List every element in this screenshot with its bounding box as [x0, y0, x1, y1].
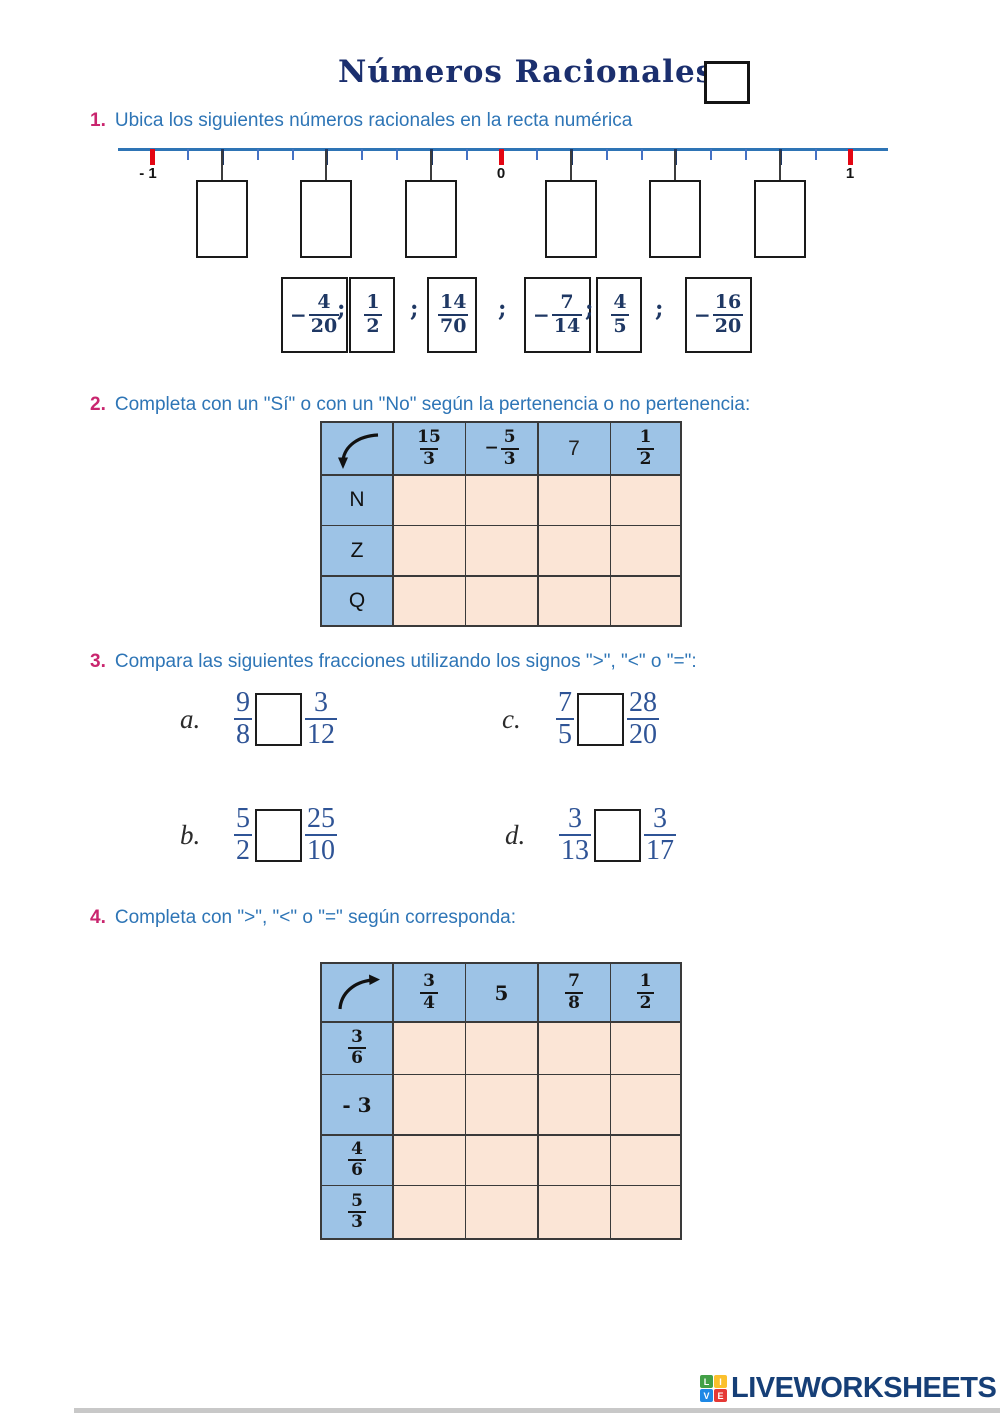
fraction-card[interactable]: 1470 — [427, 277, 477, 353]
answer-cell[interactable] — [466, 476, 537, 525]
numerator: 16 — [715, 292, 741, 314]
comparison-item-b: b. 52 2510 — [180, 804, 337, 866]
col-header: 78 — [539, 964, 610, 1021]
answer-cell[interactable] — [539, 577, 610, 625]
comparison-answer-box[interactable] — [255, 693, 302, 746]
answer-cell[interactable] — [394, 1186, 465, 1238]
denominator: 5 — [556, 718, 574, 750]
answer-cell[interactable] — [611, 1075, 680, 1134]
logo-square-v: V — [700, 1389, 713, 1402]
row-header-label: Q — [349, 589, 365, 613]
logo-square-l: L — [700, 1375, 713, 1388]
row-header-label: N — [349, 488, 364, 512]
tick-mark — [815, 149, 817, 160]
row-header: Q — [322, 577, 392, 625]
connector-line — [570, 151, 572, 181]
answer-box[interactable] — [196, 180, 248, 258]
tick-mark — [466, 149, 468, 160]
brand-text: LIVEWORKSHEETS — [731, 1372, 996, 1405]
numerator: 28 — [629, 688, 657, 718]
answer-cell[interactable] — [539, 1075, 610, 1134]
item-label: d. — [505, 820, 537, 851]
number-line-label-one: 1 — [846, 165, 854, 182]
denominator: 17 — [644, 834, 676, 866]
denominator: 20 — [309, 314, 339, 338]
row-header-label: Z — [351, 539, 364, 563]
numerator: 7 — [568, 972, 580, 991]
denominator: 6 — [348, 1159, 366, 1180]
exercise-3-number: 3. — [90, 650, 106, 674]
numerator: 4 — [317, 292, 330, 314]
connector-line — [325, 151, 327, 181]
numerator: 25 — [307, 804, 335, 834]
fraction-sign: − — [533, 303, 550, 327]
separator: ; — [498, 295, 507, 322]
denominator: 6 — [348, 1047, 366, 1068]
exercise-1-heading: 1. Ubica los siguientes números racional… — [90, 109, 632, 133]
connector-line — [221, 151, 223, 181]
answer-cell[interactable] — [394, 1136, 465, 1185]
connector-line — [674, 151, 676, 181]
row-header: N — [322, 476, 392, 525]
numerator: 1 — [640, 428, 652, 447]
comparison-answer-box[interactable] — [594, 809, 641, 862]
answer-cell[interactable] — [611, 1186, 680, 1238]
col-header: 12 — [611, 964, 680, 1021]
denominator: 2 — [637, 992, 655, 1013]
denominator: 12 — [305, 718, 337, 750]
numerator: 3 — [351, 1028, 363, 1047]
tick-mark — [396, 149, 398, 160]
liveworksheets-logo-icon: L I V E — [700, 1375, 727, 1402]
exercise-2-heading: 2. Completa con un "Sí" o con un "No" se… — [90, 393, 750, 417]
tick-red-minus-one — [150, 149, 155, 165]
answer-cell[interactable] — [466, 1136, 537, 1185]
tick-mark — [745, 149, 747, 160]
col-header-value: 5 — [495, 981, 509, 1005]
curved-arrow-down-icon — [328, 427, 386, 471]
row-header: 46 — [322, 1136, 392, 1185]
answer-cell[interactable] — [394, 476, 465, 525]
numerator: 3 — [568, 804, 582, 834]
answer-cell[interactable] — [466, 526, 537, 575]
separator: ; — [655, 295, 664, 322]
comparison-item-c: c. 75 2820 — [502, 688, 659, 750]
answer-cell[interactable] — [611, 476, 680, 525]
fraction-card[interactable]: − 1620 — [685, 277, 752, 353]
denominator: 8 — [565, 992, 583, 1013]
answer-box[interactable] — [405, 180, 457, 258]
page-title: Números Racionales — [338, 54, 714, 90]
comparison-item-a: a. 98 312 — [180, 688, 337, 750]
answer-box[interactable] — [754, 180, 806, 258]
tick-mark — [257, 149, 259, 160]
tick-mark — [606, 149, 608, 160]
answer-cell[interactable] — [394, 526, 465, 575]
answer-box[interactable] — [300, 180, 352, 258]
denominator: 3 — [348, 1211, 366, 1232]
denominator: 13 — [559, 834, 591, 866]
table-corner-arrow-cell — [322, 423, 392, 474]
connector-line — [779, 151, 781, 181]
numerator: 4 — [613, 292, 626, 314]
numerator: 1 — [640, 972, 652, 991]
answer-cell[interactable] — [611, 577, 680, 625]
numerator: 7 — [560, 292, 573, 314]
col-header-value: 7 — [568, 437, 580, 461]
denominator: 10 — [305, 834, 337, 866]
membership-table: 153 −53 7 12 N Z Q — [320, 421, 682, 627]
exercise-2-prompt: Completa con un "Sí" o con un "No" según… — [115, 393, 750, 417]
answer-cell[interactable] — [466, 1023, 537, 1074]
col-header: 34 — [394, 964, 465, 1021]
denominator: 14 — [552, 314, 582, 338]
answer-box[interactable] — [545, 180, 597, 258]
tick-mark — [361, 149, 363, 160]
col-header: 153 — [394, 423, 465, 474]
numerator: 14 — [440, 292, 466, 314]
exercise-4-heading: 4. Completa con ">", "<" o "=" según cor… — [90, 906, 516, 930]
row-header: Z — [322, 526, 392, 575]
fraction-sign: − — [290, 303, 307, 327]
answer-cell[interactable] — [539, 526, 610, 575]
tick-red-one — [848, 149, 853, 165]
exercise-3-prompt: Compara las siguientes fracciones utiliz… — [115, 650, 697, 674]
answer-cell[interactable] — [539, 1136, 610, 1185]
separator: ; — [337, 295, 346, 322]
numerator: 7 — [558, 688, 572, 718]
row-header-value: - 3 — [342, 1093, 371, 1117]
tick-mark — [641, 149, 643, 160]
answer-cell[interactable] — [611, 1136, 680, 1185]
tick-mark — [292, 149, 294, 160]
answer-cell[interactable] — [394, 577, 465, 625]
numerator: 5 — [351, 1192, 363, 1211]
exercise-3-heading: 3. Compara las siguientes fracciones uti… — [90, 650, 697, 674]
exercise-1-prompt: Ubica los siguientes números racionales … — [115, 109, 632, 133]
comparison-item-d: d. 313 317 — [505, 804, 676, 866]
curved-arrow-right-icon — [328, 969, 386, 1017]
fraction-card[interactable]: 45 — [596, 277, 642, 353]
denominator: 3 — [420, 448, 438, 469]
denominator: 5 — [611, 314, 628, 338]
logo-square-e: E — [714, 1389, 727, 1402]
fraction-sign: − — [694, 303, 711, 327]
answer-cell[interactable] — [394, 1075, 465, 1134]
col-header: −53 — [466, 423, 537, 474]
tick-mark — [536, 149, 538, 160]
liveworksheets-brand: L I V E LIVEWORKSHEETS — [700, 1372, 996, 1405]
row-header: 36 — [322, 1023, 392, 1074]
answer-cell[interactable] — [539, 1186, 610, 1238]
col-header: 12 — [611, 423, 680, 474]
denominator: 20 — [713, 314, 743, 338]
denominator: 8 — [234, 718, 252, 750]
numerator: 4 — [351, 1140, 363, 1159]
col-header: 5 — [466, 964, 537, 1021]
denominator: 3 — [501, 448, 519, 469]
numerator: 3 — [653, 804, 667, 834]
numerator: 3 — [423, 972, 435, 991]
tick-mark — [710, 149, 712, 160]
comparison-answer-box[interactable] — [255, 809, 302, 862]
item-label: a. — [180, 704, 212, 735]
answer-cell[interactable] — [394, 1023, 465, 1074]
numerator: 15 — [417, 428, 441, 447]
exercise-1-number: 1. — [90, 109, 106, 133]
numerator: 5 — [236, 804, 250, 834]
number-line-label-minus-one: - 1 — [139, 165, 157, 182]
denominator: 4 — [420, 992, 438, 1013]
comparison-answer-box[interactable] — [577, 693, 624, 746]
numerator: 1 — [366, 292, 379, 314]
title-answer-box[interactable] — [704, 61, 750, 104]
col-header: 7 — [539, 423, 610, 474]
logo-square-i: I — [714, 1375, 727, 1388]
separator: ; — [410, 295, 419, 322]
fraction-sign: − — [484, 439, 498, 458]
number-line-label-zero: 0 — [497, 165, 505, 182]
row-header: 53 — [322, 1186, 392, 1238]
answer-cell[interactable] — [466, 1075, 537, 1134]
exercise-4-prompt: Completa con ">", "<" o "=" según corres… — [115, 906, 516, 930]
answer-cell[interactable] — [611, 526, 680, 575]
answer-cell[interactable] — [611, 1023, 680, 1074]
tick-red-zero — [499, 149, 504, 165]
comparison-table: 34 5 78 12 36 - 3 46 53 — [320, 962, 682, 1240]
denominator: 70 — [438, 314, 468, 338]
number-line: - 1 0 1 — [118, 148, 888, 263]
numerator: 9 — [236, 688, 250, 718]
item-label: c. — [502, 704, 534, 735]
tick-mark — [187, 149, 189, 160]
exercise-4-number: 4. — [90, 906, 106, 930]
denominator: 2 — [234, 834, 252, 866]
answer-cell[interactable] — [466, 1186, 537, 1238]
connector-line — [430, 151, 432, 181]
item-label: b. — [180, 820, 212, 851]
answer-cell[interactable] — [466, 577, 537, 625]
row-header: - 3 — [322, 1075, 392, 1134]
table-corner-arrow-cell — [322, 964, 392, 1021]
separator: ; — [585, 295, 594, 322]
denominator: 20 — [627, 718, 659, 750]
numerator: 5 — [504, 428, 516, 447]
page-bottom-edge — [74, 1408, 1000, 1413]
fraction-card[interactable]: 12 — [349, 277, 395, 353]
denominator: 2 — [364, 314, 381, 338]
numerator: 3 — [314, 688, 328, 718]
answer-box[interactable] — [649, 180, 701, 258]
denominator: 2 — [637, 448, 655, 469]
fraction-card[interactable]: − 714 — [524, 277, 591, 353]
answer-cell[interactable] — [539, 1023, 610, 1074]
answer-cell[interactable] — [539, 476, 610, 525]
exercise-2-number: 2. — [90, 393, 106, 417]
